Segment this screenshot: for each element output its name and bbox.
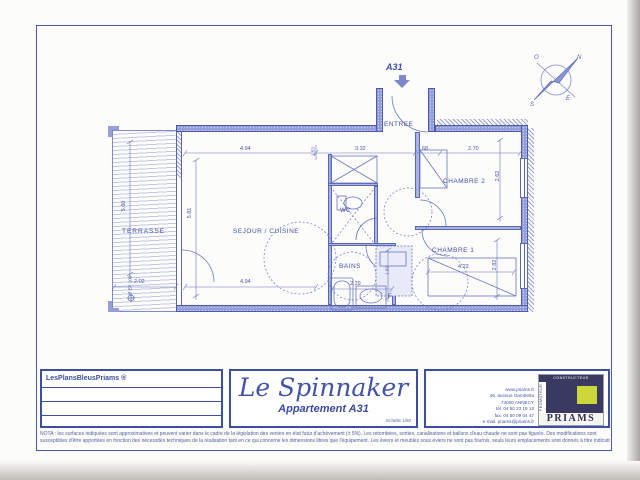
titleblock-company-box: www.priams.fr 46, avenue Gambetta 74000 … [424,369,610,428]
compass-s: S [530,102,534,108]
compass-n: N [577,55,582,61]
apartment-name: Appartement A31 [231,403,416,415]
dim-chambre1-height: 2.82 [492,253,498,277]
logo-constructeur-band: CONSTRUCTEUR [539,375,603,382]
dim-sejour-bottom: 4.94 [240,279,251,285]
wall-bottom [176,305,528,312]
dim-chambre2-width: 2.70 [468,146,479,152]
scan-edge-bottom [0,461,640,480]
terrasse-corner-top [108,126,119,137]
unit-label: A31 [386,62,403,72]
partition-sejour [328,154,332,305]
titleblock-brand-box: LesPlansBleusPriams ® [40,369,223,428]
dim-terrasse-width: 2.02 [134,279,145,285]
partition-hall [374,186,378,246]
partition-chambre2-left [415,132,420,198]
dim-sejour-height: 5.81 [187,201,193,225]
brand-row: LesPlansBleusPriams ® [42,371,221,388]
hatch-glazing-top [176,132,182,178]
dim-small-top: 1.53 [311,142,316,162]
partition-bains-right [392,246,396,305]
dim-closet-width: 68 [422,146,428,152]
terrasse-slab [112,130,178,312]
room-label-sejour: SEJOUR / CUISINE [233,228,299,235]
wall-entree-right [428,88,435,132]
wall-entree-left [376,88,383,132]
label-fridge: F [388,294,392,300]
window-chambre1 [520,243,528,289]
logo-wordmark: PRIAMS [539,413,603,425]
wall-top-left [176,125,378,132]
window-chambre2 [520,158,528,198]
room-label-terrasse: TERRASSE [122,228,165,235]
dim-hall-width: 3.32 [355,146,366,152]
room-label-entree: ENTREE [384,121,413,128]
brand-label: LesPlansBleusPriams ® [46,375,126,382]
room-label-chambre1: CHAMBRE 1 [432,247,474,254]
label-drain: Ø EP 100 [128,271,133,301]
residence-name: Le Spinnaker [231,373,416,402]
titleblock-project-box: Le Spinnaker Appartement A31 Echelle 1/5… [229,369,418,428]
scan-edge-right [627,0,640,480]
room-label-chambre2: CHAMBRE 2 [443,178,485,185]
compass-rose-icon: N O S E [522,50,590,114]
priams-logo: CONSTRUCTEUR PROMOTEUR PRIAMS [538,374,604,426]
hatch-top-right-exterior [437,119,528,125]
logo-promoteur-band: PROMOTEUR [539,382,546,413]
compass-o: O [534,55,539,61]
dim-bains-height: 1.92 [385,261,390,281]
unit-arrow-icon [394,80,410,88]
scale-label: Echelle 1/50 [386,418,411,423]
dim-sejour-top: 4.94 [240,146,251,152]
dim-chambre1-width: 4.22 [458,264,469,270]
partition-closet-bottom [328,183,378,186]
empty-row-1 [42,388,221,402]
empty-row-3 [42,416,221,428]
logo-square [546,382,603,413]
partition-chambres [415,226,521,230]
dim-bains-width: 2.29 [350,281,361,287]
nota-block: NOTA : les surfaces indiquées sont appro… [40,431,610,444]
logo-constructeur-label: CONSTRUCTEUR [553,376,588,380]
contact-email: e-mail. priams@priams.fr [434,419,534,425]
terrasse-corner-bottom [108,301,119,312]
partition-bains-top [328,243,396,246]
hatch-right-exterior [528,128,534,312]
nota-line-1: NOTA : les surfaces indiquées sont appro… [40,431,610,437]
empty-row-2 [42,402,221,416]
dim-chambre2-height: 2.62 [495,164,501,188]
wall-top-right [435,125,528,132]
compass-e: E [566,96,571,102]
scanned-floor-plan-sheet: A31 N O S E [0,0,640,480]
dim-terrasse-height: 5.60 [121,194,127,218]
logo-yellow-square [577,386,597,404]
nota-line-2: susceptibles d'être apportées en fonctio… [40,438,610,444]
room-label-bains: BAINS [339,263,361,270]
room-label-wc: WC [340,208,351,214]
company-contact: www.priams.fr 46, avenue Gambetta 74000 … [434,387,534,426]
